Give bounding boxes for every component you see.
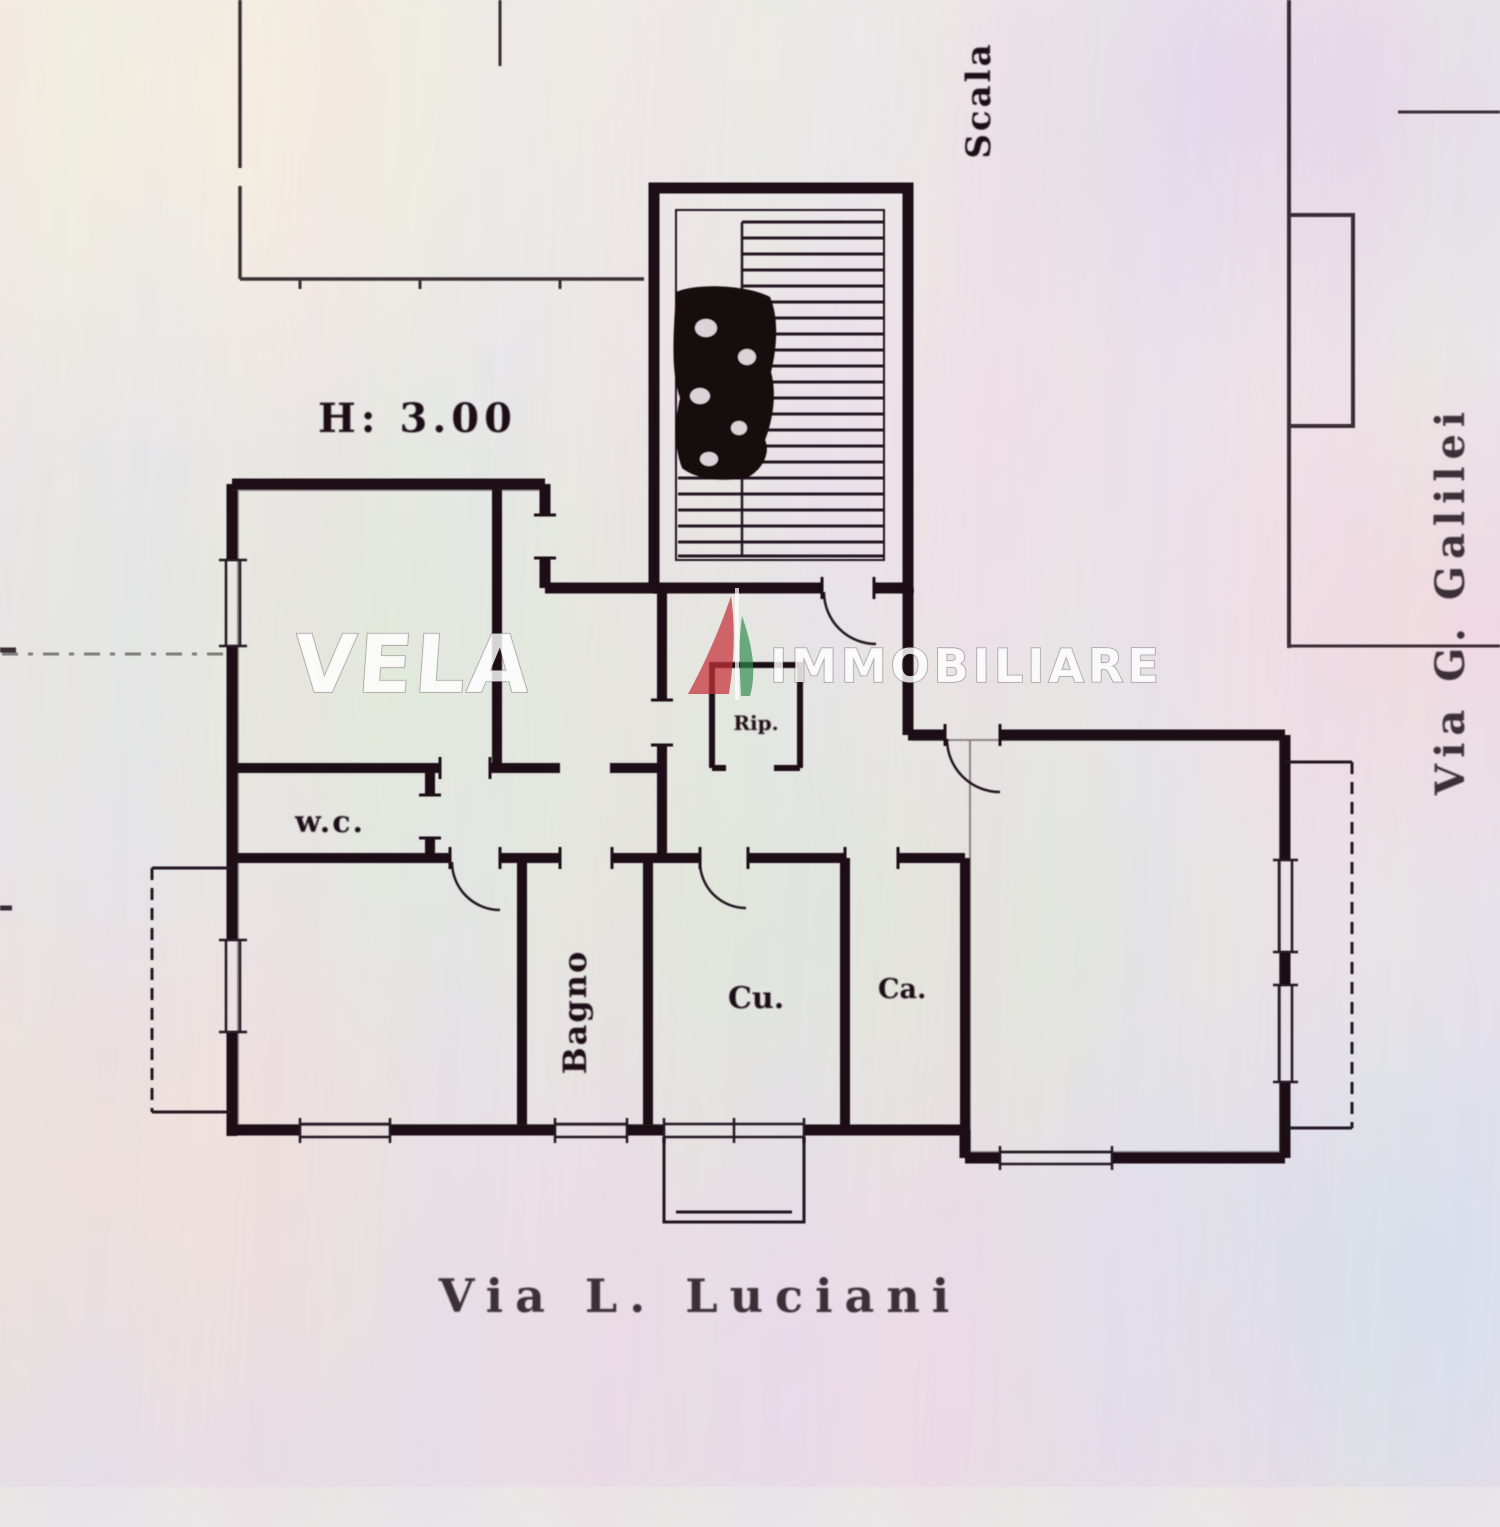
window-left-1 bbox=[219, 560, 247, 646]
room-label-storage: Rip. bbox=[733, 711, 778, 735]
street-label-bottom: Via L. Luciani bbox=[438, 1269, 962, 1323]
street-labels: Via L. Luciani Via G. Galilei bbox=[438, 405, 1474, 1323]
floor-plan-drawing: H: 3.00 w.c. Bagno Cu. Ca. Rip. Scala Vi… bbox=[0, 0, 1500, 1487]
upper-right-balcony-outline bbox=[1289, 215, 1353, 426]
street-label-right: Via G. Galilei bbox=[1427, 405, 1474, 796]
watermark: VELA IMMOBILIARE bbox=[291, 588, 1163, 711]
living-door-swing bbox=[947, 739, 1000, 792]
staircase-block bbox=[654, 188, 908, 588]
sail-icon bbox=[688, 588, 753, 700]
balcony-right bbox=[1285, 762, 1352, 1128]
window-right-2 bbox=[1273, 985, 1298, 1082]
terrace-bottom bbox=[664, 1137, 804, 1222]
french-window-kitchen bbox=[664, 1118, 804, 1143]
bedroom-door-swing bbox=[452, 862, 500, 910]
window-right-1 bbox=[1273, 860, 1298, 952]
window-bottom-living bbox=[1000, 1146, 1112, 1170]
window-bottom-bath bbox=[555, 1118, 627, 1143]
window-bottom-bedroom bbox=[300, 1118, 390, 1143]
room-label-camera: Ca. bbox=[878, 974, 926, 1005]
ceiling-height-note: H: 3.00 bbox=[318, 395, 517, 442]
entry-door-swing bbox=[824, 592, 876, 644]
room-label-wc: w.c. bbox=[294, 805, 365, 840]
window-left-2 bbox=[219, 940, 247, 1032]
stair-label: Scala bbox=[959, 41, 999, 158]
room-label-bath: Bagno bbox=[556, 950, 594, 1075]
edge-marks bbox=[0, 650, 16, 908]
stairwell-void-scribble bbox=[673, 286, 776, 480]
watermark-brand-primary: VELA bbox=[291, 618, 535, 711]
watermark-brand-secondary: IMMOBILIARE bbox=[770, 639, 1163, 693]
kitchen-door-swing bbox=[700, 862, 746, 908]
room-label-kitchen: Cu. bbox=[728, 981, 784, 1016]
balcony-left bbox=[152, 868, 232, 1112]
